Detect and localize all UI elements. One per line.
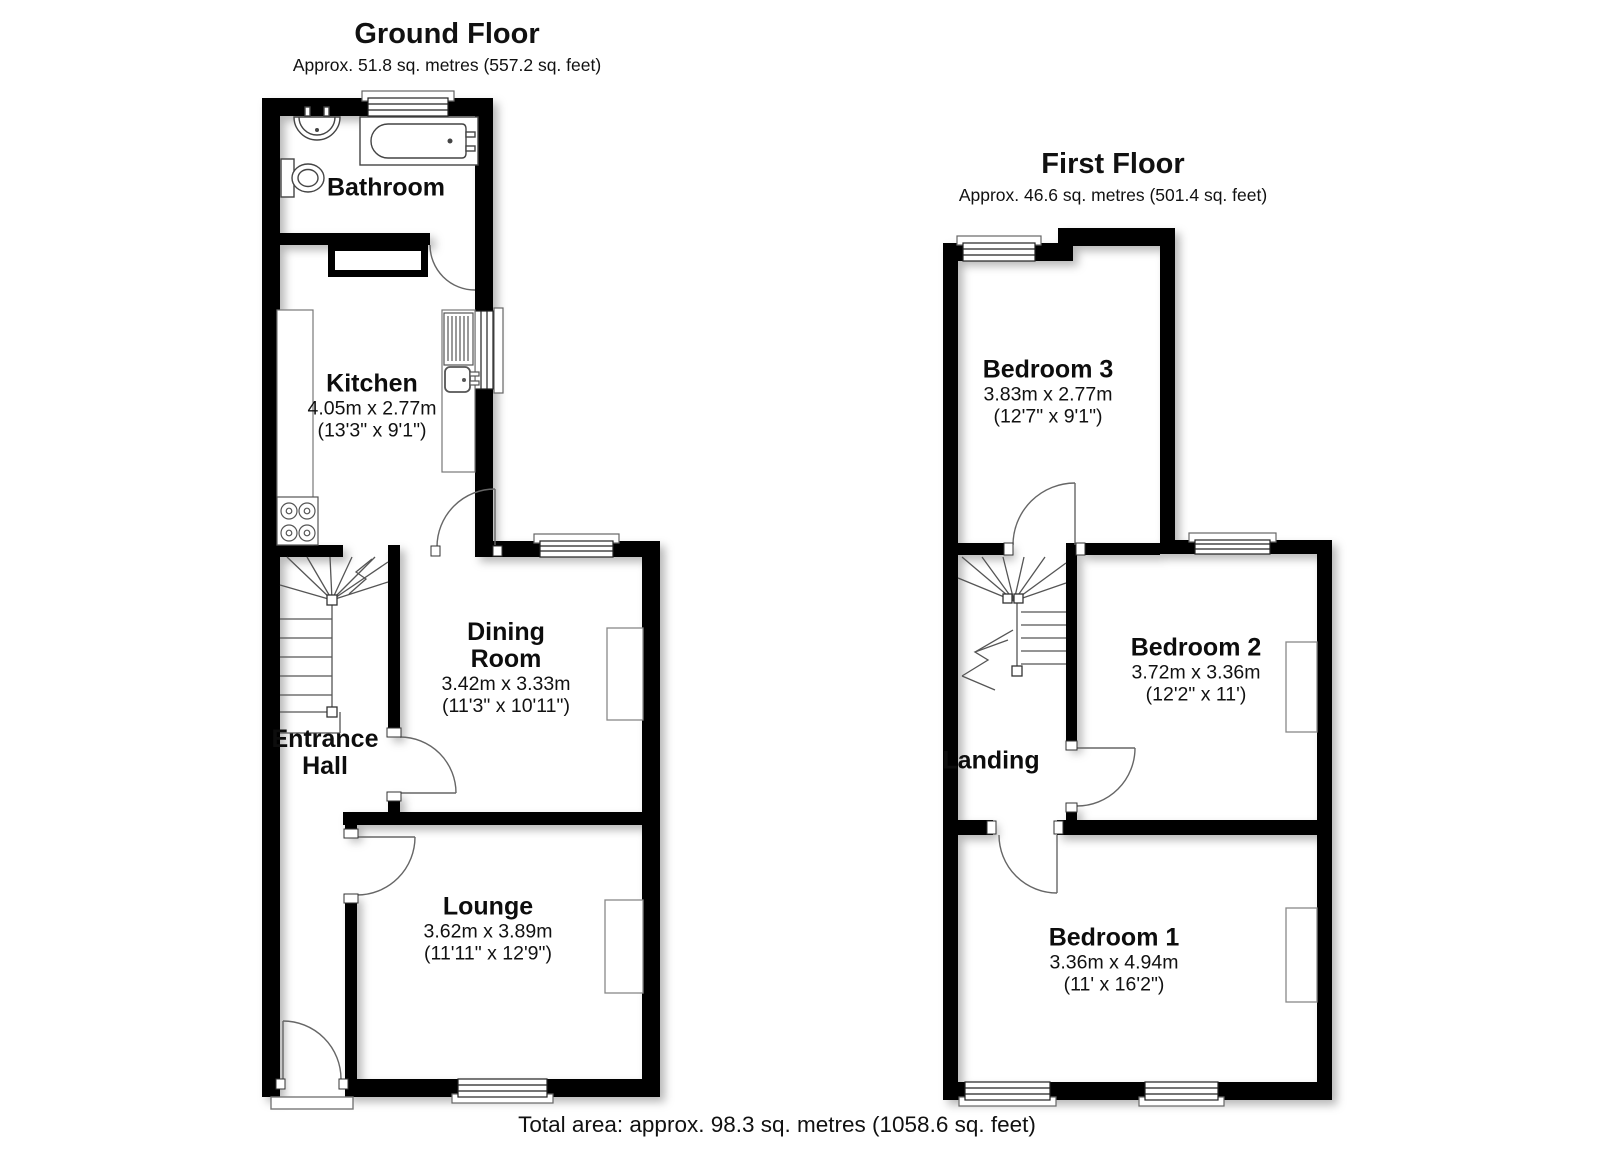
room-label-hall: Entrance Hall (272, 726, 379, 780)
bedroom1-alcove (1286, 908, 1317, 1002)
dining-alcove (607, 628, 643, 720)
total-area-note: Total area: approx. 98.3 sq. metres (105… (77, 1112, 1477, 1138)
room-label-bedroom2: Bedroom 2 3.72m x 3.36m (12'2" x 11') (1131, 634, 1262, 705)
ground-floor-title: Ground Floor (262, 18, 632, 51)
room-label-bedroom3: Bedroom 3 3.83m x 2.77m (12'7" x 9'1") (983, 356, 1114, 427)
room-label-landing: Landing (942, 748, 1039, 775)
bathroom-window-icon (362, 91, 454, 116)
kitchen-window-icon (475, 308, 503, 393)
bedroom1-window-right-icon (1139, 1082, 1224, 1106)
first-stairs (958, 557, 1066, 690)
bedroom3-door-icon (1013, 483, 1075, 545)
front-door-icon (271, 1021, 353, 1109)
dining-door-icon (400, 737, 456, 793)
bedroom2-door-icon (1077, 748, 1135, 806)
kitchen-cupboard (332, 248, 425, 274)
bedroom1-window-left-icon (959, 1082, 1056, 1106)
bedroom2-alcove (1286, 642, 1317, 732)
floor-plan-canvas (0, 0, 1600, 1164)
room-label-bedroom1: Bedroom 1 3.36m x 4.94m (11' x 16'2") (1049, 924, 1180, 995)
kitchen-sink-icon (442, 310, 479, 472)
bedroom1-door-icon (999, 835, 1057, 893)
lounge-alcove (605, 900, 643, 993)
bathroom-door-icon (430, 245, 475, 290)
ground-floor-header: Ground Floor Approx. 51.8 sq. metres (55… (262, 18, 632, 76)
bathtub-icon (360, 117, 478, 165)
room-label-dining: Dining Room 3.42m x 3.33m (11'3" x 10'11… (442, 619, 571, 717)
bedroom2-window-icon (1189, 533, 1276, 554)
ground-stairs (280, 557, 388, 733)
room-label-kitchen: Kitchen 4.05m x 2.77m (13'3" x 9'1") (308, 370, 437, 441)
first-floor-title: First Floor (943, 148, 1283, 181)
ground-floor-subtitle: Approx. 51.8 sq. metres (557.2 sq. feet) (262, 55, 632, 76)
dining-window-icon (534, 534, 619, 557)
toilet-icon (281, 159, 324, 197)
room-label-lounge: Lounge 3.62m x 3.89m (11'11" x 12'9") (424, 893, 553, 964)
hob-icon (277, 497, 318, 545)
lounge-door-icon (357, 837, 415, 895)
first-floor-subtitle: Approx. 46.6 sq. metres (501.4 sq. feet) (943, 185, 1283, 206)
ground-alcoves (605, 628, 643, 993)
bedroom3-window-icon (957, 236, 1041, 261)
first-floor-header: First Floor Approx. 46.6 sq. metres (501… (943, 148, 1283, 206)
room-label-bathroom: Bathroom (327, 175, 445, 202)
lounge-window-icon (452, 1079, 553, 1103)
floorplan-page: { "ground_floor": { "title": "Ground Flo… (0, 0, 1600, 1164)
